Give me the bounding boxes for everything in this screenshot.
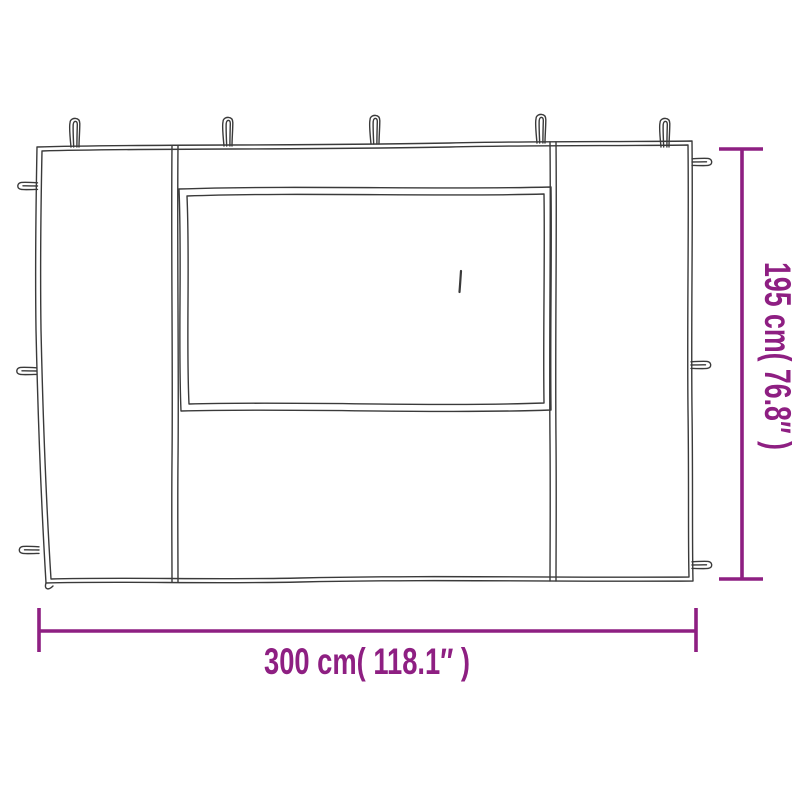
- left-panel-seam: [172, 146, 179, 582]
- left-loop-middle: [17, 367, 37, 374]
- right-loop-top: [692, 158, 712, 165]
- sidewall-outline-outer: [36, 141, 693, 583]
- top-tab-5: [660, 118, 670, 147]
- window-frame-inner: [187, 194, 544, 404]
- top-tab-4: [536, 114, 546, 143]
- right-loop-middle: [691, 361, 711, 368]
- window-frame-outer: [179, 187, 551, 411]
- zipper-pull-mark: [460, 271, 462, 292]
- left-loop-bottom: [19, 546, 39, 553]
- side-strap-loops: [17, 158, 712, 568]
- sidewall-outline-inner: [41, 145, 689, 579]
- height-dimension-label: 195 cm( 76.8″ ): [757, 262, 798, 450]
- top-tab-3: [370, 115, 380, 144]
- diagram-canvas: 300 cm( 118.1″ ) 195 cm( 76.8″ ): [0, 0, 800, 800]
- top-tab-2: [223, 117, 233, 146]
- height-dimension-line: [719, 149, 763, 579]
- left-loop-top: [18, 182, 38, 189]
- sidewall-drawing: [17, 114, 712, 588]
- right-loop-bottom: [692, 561, 712, 568]
- dimension-labels: 300 cm( 118.1″ ) 195 cm( 76.8″ ): [264, 262, 798, 682]
- width-dimension-label: 300 cm( 118.1″ ): [264, 641, 470, 682]
- bottom-left-corner-curl: [45, 583, 53, 589]
- top-tab-1: [70, 118, 80, 147]
- product-dimension-diagram: 300 cm( 118.1″ ) 195 cm( 76.8″ ): [0, 0, 800, 800]
